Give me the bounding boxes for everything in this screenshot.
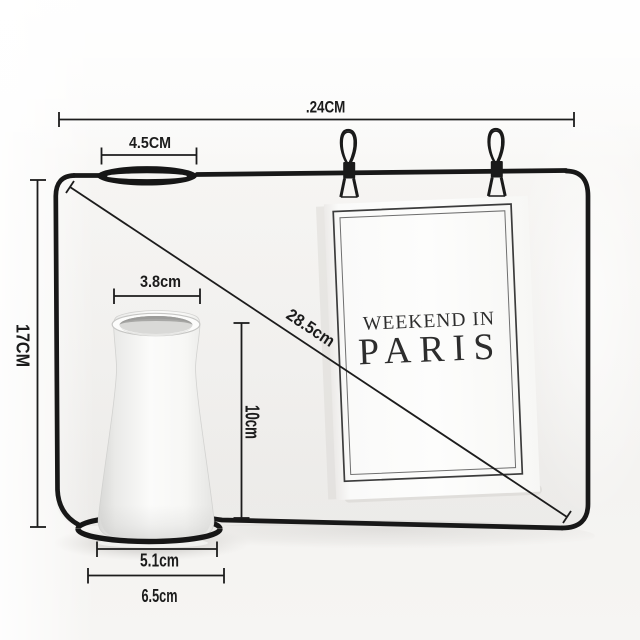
svg-text:5.1cm: 5.1cm: [140, 551, 179, 571]
svg-text:10cm: 10cm: [241, 405, 263, 439]
svg-text:.24CM: .24CM: [306, 98, 346, 117]
svg-text:4.5CM: 4.5CM: [129, 135, 171, 152]
svg-text:6.5cm: 6.5cm: [142, 586, 178, 606]
svg-text:3.8cm: 3.8cm: [140, 272, 181, 291]
svg-text:17CM: 17CM: [13, 324, 34, 367]
